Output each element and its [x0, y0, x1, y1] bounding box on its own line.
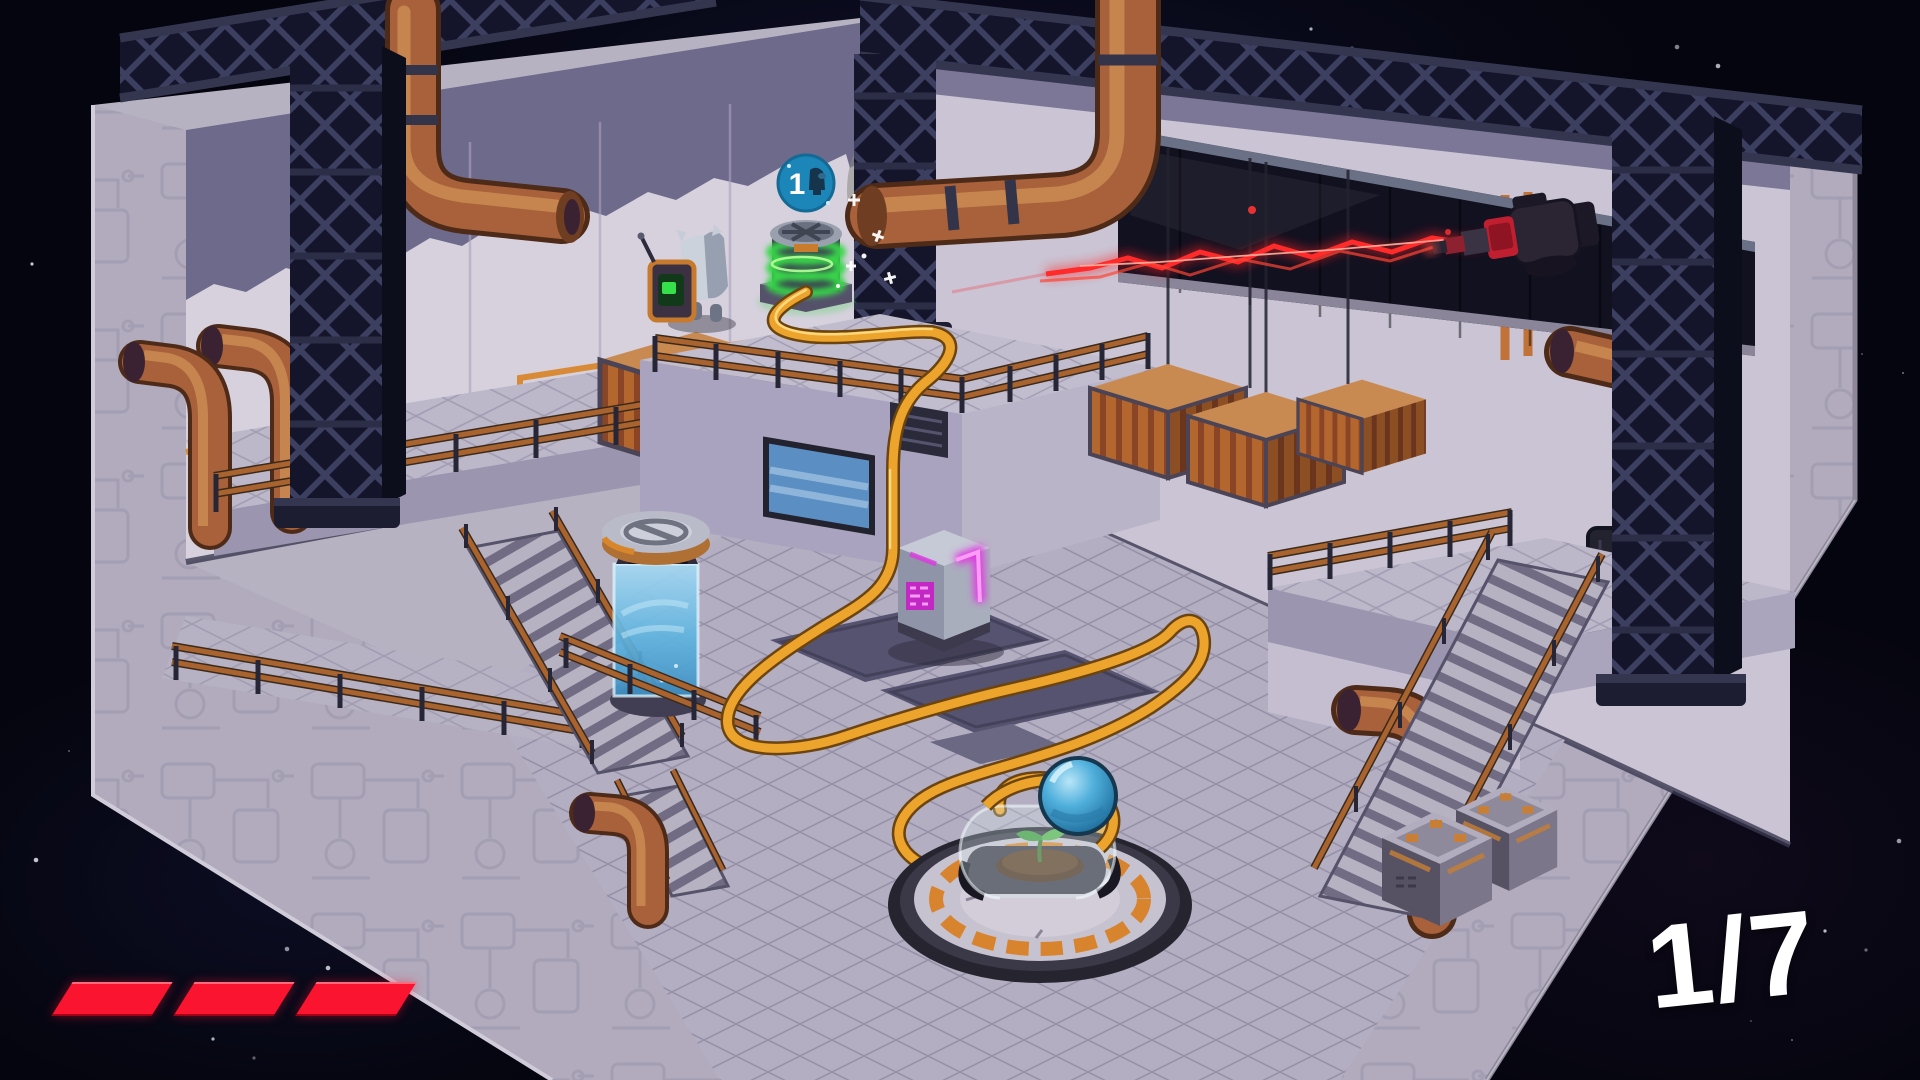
power-machine[interactable] [888, 530, 1004, 666]
blue-sphere[interactable] [1038, 756, 1118, 836]
crew-badge-count: 1 [789, 168, 806, 201]
game-scene[interactable]: 1 [0, 0, 1920, 1080]
wall-screen[interactable] [766, 440, 872, 532]
game-viewport[interactable]: 1 [0, 0, 1920, 1080]
coil-generator[interactable] [758, 220, 854, 315]
truss-tower-right [1596, 116, 1746, 706]
truss-tower-left [274, 46, 406, 528]
crew-badge[interactable]: 1 [778, 155, 834, 211]
backpack-screen [662, 282, 676, 294]
